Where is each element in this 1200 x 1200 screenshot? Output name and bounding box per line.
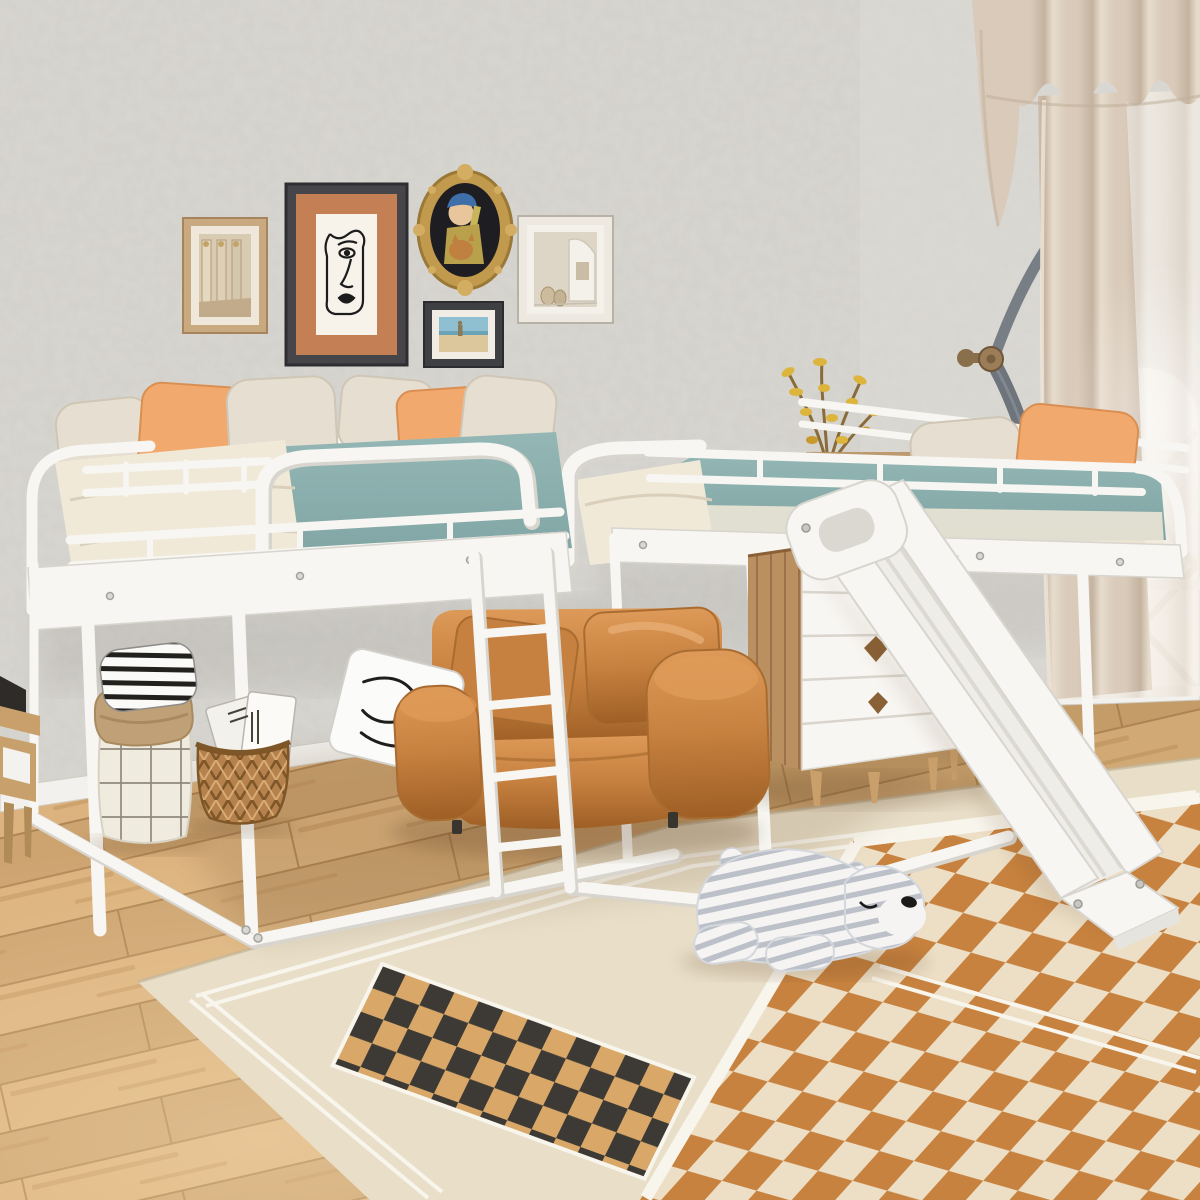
hamper <box>83 641 207 855</box>
chair-arm-left <box>393 684 484 822</box>
interior-photo <box>534 232 597 307</box>
gallery-frame-interior <box>518 216 613 323</box>
gallery-frame-beach <box>424 302 503 367</box>
bear-paw-right <box>765 934 835 973</box>
scene-canvas <box>0 0 1200 1200</box>
gallery-frame-columns <box>183 218 267 333</box>
chair-arm-right <box>645 648 771 820</box>
gallery-frame-line-art <box>286 184 407 365</box>
bear-plush <box>680 848 930 979</box>
beach-photo <box>439 317 488 352</box>
striped-pillow <box>98 641 199 714</box>
room-photo: Kids bedroom with a white metal L-shaped… <box>0 0 1200 1200</box>
